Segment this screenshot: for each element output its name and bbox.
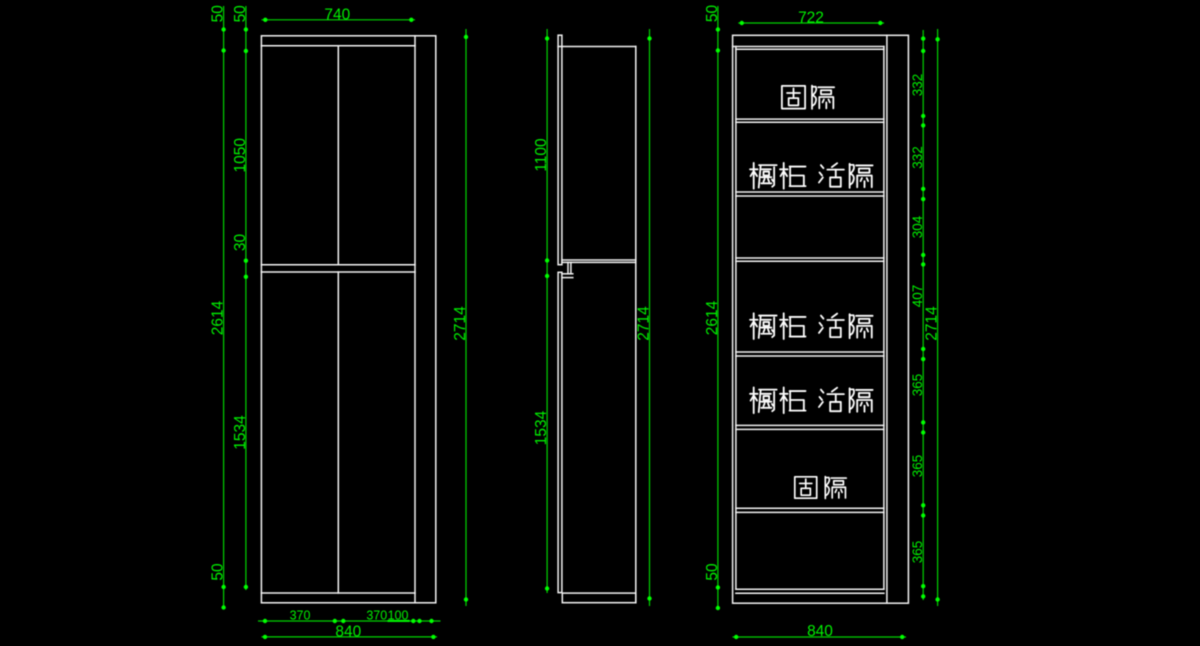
svg-text:2614: 2614: [210, 300, 227, 335]
svg-text:2714: 2714: [636, 306, 653, 341]
svg-text:1534: 1534: [533, 410, 550, 445]
svg-text:50: 50: [704, 5, 721, 23]
svg-text:50: 50: [704, 563, 721, 581]
svg-text:370: 370: [366, 608, 387, 622]
svg-text:332: 332: [910, 146, 925, 169]
svg-text:1534: 1534: [232, 415, 249, 450]
svg-text:365: 365: [910, 455, 925, 478]
svg-text:1100: 1100: [533, 138, 550, 172]
svg-text:840: 840: [335, 624, 361, 641]
svg-text:840: 840: [807, 623, 833, 640]
svg-text:722: 722: [798, 10, 824, 27]
svg-text:370: 370: [290, 608, 311, 622]
svg-text:2614: 2614: [704, 300, 721, 335]
svg-text:1050: 1050: [232, 138, 249, 173]
svg-text:407: 407: [910, 285, 925, 308]
svg-text:2714: 2714: [452, 306, 469, 341]
svg-text:332: 332: [910, 74, 925, 97]
svg-text:30: 30: [232, 234, 249, 252]
svg-text:304: 304: [910, 215, 925, 238]
svg-text:50: 50: [232, 5, 249, 23]
svg-text:2714: 2714: [924, 306, 941, 341]
svg-text:50: 50: [210, 563, 227, 581]
svg-text:740: 740: [324, 6, 350, 23]
svg-text:365: 365: [910, 374, 925, 397]
svg-text:365: 365: [910, 541, 925, 564]
svg-text:50: 50: [210, 5, 227, 23]
